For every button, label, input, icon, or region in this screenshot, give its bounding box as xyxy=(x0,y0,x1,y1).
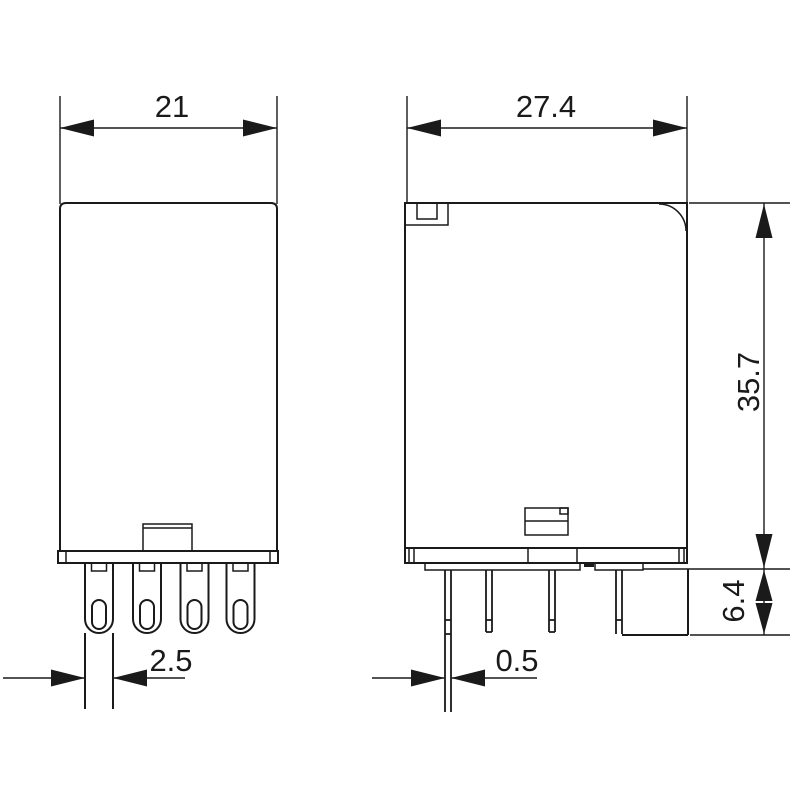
dim-pin-thickness: 0.5 xyxy=(372,643,539,687)
dim-pin-blade-width: 2.5 xyxy=(3,643,193,687)
dim-pin-length-label: 6.4 xyxy=(716,579,751,622)
dim-body-height: 35.7 xyxy=(643,203,790,569)
dim-front-width-arrow-left xyxy=(60,120,94,137)
side-pin-4 xyxy=(616,570,622,634)
front-pins xyxy=(85,563,255,709)
front-view: 21 xyxy=(3,89,278,709)
dim-front-width-arrow-right xyxy=(243,120,277,137)
front-pin-3-notch xyxy=(187,563,202,571)
dim-thickness-arrow-right xyxy=(451,670,485,687)
dim-body-height-label: 35.7 xyxy=(731,352,766,412)
side-base-notch-mark xyxy=(584,562,594,567)
front-keying-notch xyxy=(143,524,192,551)
front-pin-4 xyxy=(227,563,255,633)
dim-pin-length: 6.4 xyxy=(690,569,790,635)
relay-dimension-drawing: 21 xyxy=(0,0,800,800)
side-corner-contour xyxy=(659,204,686,231)
side-pin-3 xyxy=(549,570,555,632)
side-latch-notch xyxy=(560,508,568,514)
drawing-canvas: 21 xyxy=(0,0,800,800)
dim-pin-thickness-label: 0.5 xyxy=(495,643,538,678)
dim-pin-length-arrow-bottom xyxy=(756,603,773,634)
side-base-plate-left xyxy=(425,563,580,570)
side-clip-inner xyxy=(417,203,437,219)
front-pin-2-hole xyxy=(140,600,154,629)
side-base-plate-right xyxy=(595,563,643,570)
dim-thickness-arrow-left xyxy=(411,670,445,687)
dim-side-width-arrow-right xyxy=(653,120,687,137)
front-pin-2-notch xyxy=(140,563,155,571)
dim-height-arrow-top xyxy=(756,204,773,238)
front-pin-1 xyxy=(85,563,113,633)
front-pin-4-hole xyxy=(234,600,248,629)
front-pin-3-hole xyxy=(188,600,202,629)
dim-side-width-arrow-left xyxy=(407,120,441,137)
front-pin-4-notch xyxy=(233,563,248,571)
front-pin-3 xyxy=(181,563,209,633)
dim-pin-length-arrow-top xyxy=(756,570,773,601)
dim-side-width-label: 27.4 xyxy=(516,89,576,124)
front-flange xyxy=(58,551,278,563)
dim-blade-arrow-right xyxy=(113,670,147,687)
dim-front-width-label: 21 xyxy=(155,89,189,124)
side-body-outline xyxy=(405,203,687,548)
side-pin-2 xyxy=(486,570,492,632)
side-pin-1-long xyxy=(445,570,451,712)
dim-height-arrow-bottom xyxy=(756,534,773,568)
front-pin-1-notch xyxy=(92,563,107,571)
side-view: 27.4 xyxy=(372,89,790,712)
front-pin-1-hole xyxy=(92,600,106,629)
dim-blade-width-label: 2.5 xyxy=(149,643,192,678)
dim-blade-arrow-left xyxy=(51,670,85,687)
front-body-outline xyxy=(60,203,277,551)
side-flange xyxy=(405,548,687,563)
side-clip-outer xyxy=(405,203,448,225)
side-pins xyxy=(445,570,622,712)
front-pin-2 xyxy=(133,563,161,633)
